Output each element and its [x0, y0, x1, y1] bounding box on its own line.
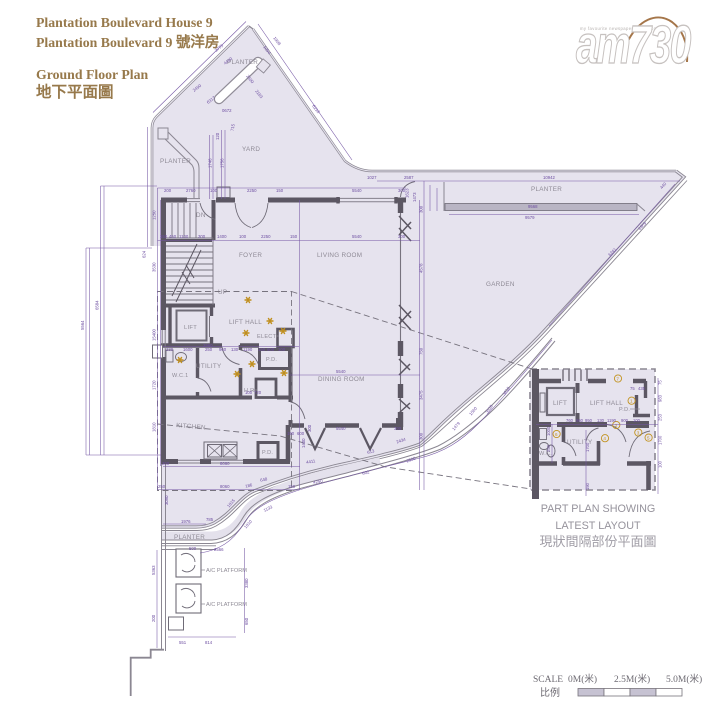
- svg-text:950: 950: [585, 418, 593, 423]
- svg-text:3090: 3090: [164, 495, 169, 505]
- svg-text:LIFT HALL: LIFT HALL: [229, 319, 262, 326]
- svg-text:UP: UP: [218, 289, 227, 296]
- svg-text:1600: 1600: [183, 347, 193, 352]
- svg-text:1746: 1746: [208, 158, 213, 168]
- svg-text:1190: 1190: [243, 347, 253, 352]
- svg-text:1810: 1810: [152, 422, 157, 432]
- svg-text:1976: 1976: [181, 519, 191, 524]
- svg-text:300: 300: [198, 234, 206, 239]
- svg-text:P.D.: P.D.: [619, 407, 630, 413]
- svg-text:5540: 5540: [352, 234, 362, 239]
- svg-text:814: 814: [205, 640, 213, 645]
- svg-text:5: 5: [647, 436, 650, 441]
- svg-text:500: 500: [189, 546, 197, 551]
- svg-text:0M(米): 0M(米): [568, 673, 597, 685]
- svg-text:100: 100: [633, 418, 641, 423]
- svg-text:ELECT.: ELECT.: [257, 334, 278, 340]
- svg-text:DN: DN: [196, 212, 206, 219]
- svg-text:2.5M(米): 2.5M(米): [614, 673, 650, 685]
- svg-text:200: 200: [151, 614, 156, 622]
- svg-text:UTILITY: UTILITY: [196, 363, 222, 370]
- svg-text:6584: 6584: [95, 300, 100, 310]
- svg-text:3530: 3530: [152, 262, 157, 272]
- svg-text:5.0M(米): 5.0M(米): [666, 673, 702, 685]
- svg-text:5564: 5564: [80, 320, 85, 330]
- svg-text:A/C PLATFORM: A/C PLATFORM: [206, 568, 247, 574]
- svg-text:300: 300: [307, 424, 312, 432]
- svg-text:9579: 9579: [525, 215, 535, 220]
- svg-text:190: 190: [287, 431, 295, 436]
- svg-text:1250: 1250: [152, 210, 157, 220]
- svg-text:PLANTER: PLANTER: [174, 534, 205, 541]
- svg-text:300: 300: [398, 234, 406, 239]
- svg-text:600: 600: [267, 347, 275, 352]
- svg-text:P.D.: P.D.: [266, 357, 277, 363]
- svg-text:100: 100: [245, 390, 253, 395]
- svg-text:2250: 2250: [261, 234, 271, 239]
- svg-text:LIFT: LIFT: [184, 325, 197, 331]
- svg-text:2: 2: [615, 423, 618, 428]
- svg-text:5363: 5363: [151, 565, 156, 575]
- svg-text:3: 3: [637, 430, 640, 435]
- svg-text:A/C PLATFORM: A/C PLATFORM: [206, 602, 247, 608]
- svg-text:100: 100: [210, 188, 218, 193]
- svg-text:1700: 1700: [585, 442, 590, 452]
- svg-text:960: 960: [576, 418, 584, 423]
- svg-text:2587: 2587: [404, 175, 414, 180]
- svg-text:Plantation Boulevard 9 號洋房: Plantation Boulevard 9 號洋房: [36, 33, 219, 51]
- svg-text:7: 7: [616, 376, 619, 381]
- svg-text:1756: 1756: [220, 158, 225, 168]
- svg-text:120: 120: [215, 132, 220, 140]
- svg-text:300: 300: [419, 432, 424, 440]
- svg-text:3380: 3380: [244, 578, 249, 588]
- svg-text:75: 75: [658, 380, 663, 385]
- svg-text:LIFT HALL: LIFT HALL: [590, 400, 623, 407]
- svg-text:100: 100: [658, 460, 663, 468]
- svg-text:720: 720: [254, 390, 262, 395]
- svg-text:785: 785: [206, 517, 214, 522]
- svg-text:200: 200: [162, 461, 170, 466]
- svg-text:200: 200: [164, 188, 172, 193]
- svg-text:1700: 1700: [658, 435, 663, 445]
- svg-text:1400: 1400: [301, 438, 306, 448]
- svg-text:10942: 10942: [543, 175, 556, 180]
- svg-text:8060: 8060: [220, 461, 230, 466]
- svg-text:150: 150: [276, 188, 284, 193]
- svg-text:LATEST LAYOUT: LATEST LAYOUT: [555, 520, 641, 532]
- svg-text:3475: 3475: [419, 390, 424, 400]
- svg-text:900: 900: [621, 418, 629, 423]
- svg-text:LIVING ROOM: LIVING ROOM: [317, 252, 362, 259]
- svg-text:300: 300: [394, 426, 402, 431]
- svg-text:P.D.: P.D.: [262, 450, 273, 456]
- svg-text:250: 250: [158, 484, 166, 489]
- svg-text:75: 75: [630, 386, 635, 391]
- svg-text:960: 960: [219, 347, 227, 352]
- svg-text:230: 230: [166, 347, 174, 352]
- svg-text:253: 253: [658, 413, 663, 421]
- svg-text:600: 600: [297, 431, 305, 436]
- svg-text:150: 150: [258, 347, 266, 352]
- svg-text:DINING ROOM: DINING ROOM: [318, 376, 365, 383]
- svg-text:624: 624: [142, 250, 147, 258]
- svg-text:2960: 2960: [203, 343, 213, 348]
- svg-text:8060: 8060: [220, 484, 230, 489]
- svg-text:2250: 2250: [247, 188, 257, 193]
- svg-text:1623: 1623: [405, 188, 410, 198]
- svg-text:GARDEN: GARDEN: [486, 281, 515, 288]
- svg-text:551: 551: [179, 640, 187, 645]
- svg-text:PLANTER: PLANTER: [160, 158, 191, 165]
- svg-text:250: 250: [546, 444, 551, 452]
- svg-text:650: 650: [244, 617, 249, 625]
- svg-text:0672: 0672: [222, 108, 232, 113]
- svg-text:1027: 1027: [367, 175, 377, 180]
- svg-text:4: 4: [603, 436, 606, 441]
- svg-text:2566: 2566: [214, 547, 224, 552]
- svg-text:2760: 2760: [186, 188, 196, 193]
- svg-text:6: 6: [555, 432, 558, 437]
- svg-text:PLANTER: PLANTER: [531, 186, 562, 193]
- svg-text:1190: 1190: [607, 418, 617, 423]
- svg-text:1720: 1720: [152, 380, 157, 390]
- svg-text:100: 100: [239, 234, 247, 239]
- svg-text:現狀間隔部份平面圖: 現狀間隔部份平面圖: [539, 534, 656, 549]
- svg-text:9568: 9568: [528, 204, 538, 209]
- svg-text:300: 300: [419, 205, 424, 213]
- svg-text:PART PLAN SHOWING: PART PLAN SHOWING: [541, 503, 656, 515]
- svg-text:W.C.1: W.C.1: [172, 373, 188, 379]
- svg-text:760: 760: [566, 418, 574, 423]
- svg-text:5540: 5540: [336, 369, 346, 374]
- svg-text:150: 150: [160, 234, 168, 239]
- svg-text:比例: 比例: [540, 686, 560, 699]
- svg-text:SCALE: SCALE: [533, 675, 563, 685]
- svg-text:150: 150: [290, 234, 298, 239]
- svg-text:15400: 15400: [152, 328, 157, 341]
- svg-text:190: 190: [585, 482, 590, 490]
- svg-text:FOYER: FOYER: [239, 252, 262, 259]
- svg-text:4578: 4578: [419, 263, 424, 273]
- svg-text:435: 435: [638, 386, 646, 391]
- svg-text:5540: 5540: [352, 188, 362, 193]
- svg-text:1473: 1473: [412, 192, 417, 202]
- svg-text:130: 130: [597, 418, 605, 423]
- svg-text:Plantation Boulevard House 9: Plantation Boulevard House 9: [36, 15, 213, 30]
- svg-text:450: 450: [169, 234, 177, 239]
- svg-text:1400: 1400: [217, 234, 227, 239]
- svg-text:YARD: YARD: [242, 146, 260, 153]
- svg-text:地下平面圖: 地下平面圖: [36, 82, 114, 101]
- svg-text:LIFT: LIFT: [553, 400, 567, 407]
- svg-text:5540: 5540: [336, 426, 346, 431]
- svg-text:130: 130: [231, 347, 239, 352]
- svg-text:983: 983: [658, 394, 663, 402]
- svg-text:750: 750: [419, 347, 424, 355]
- svg-text:1000: 1000: [546, 426, 551, 436]
- svg-text:100: 100: [278, 347, 286, 352]
- svg-text:am730: am730: [576, 14, 691, 75]
- svg-text:1: 1: [630, 399, 633, 404]
- svg-text:150: 150: [288, 484, 296, 489]
- svg-text:Ground Floor Plan: Ground Floor Plan: [36, 67, 149, 82]
- svg-text:1100: 1100: [179, 234, 189, 239]
